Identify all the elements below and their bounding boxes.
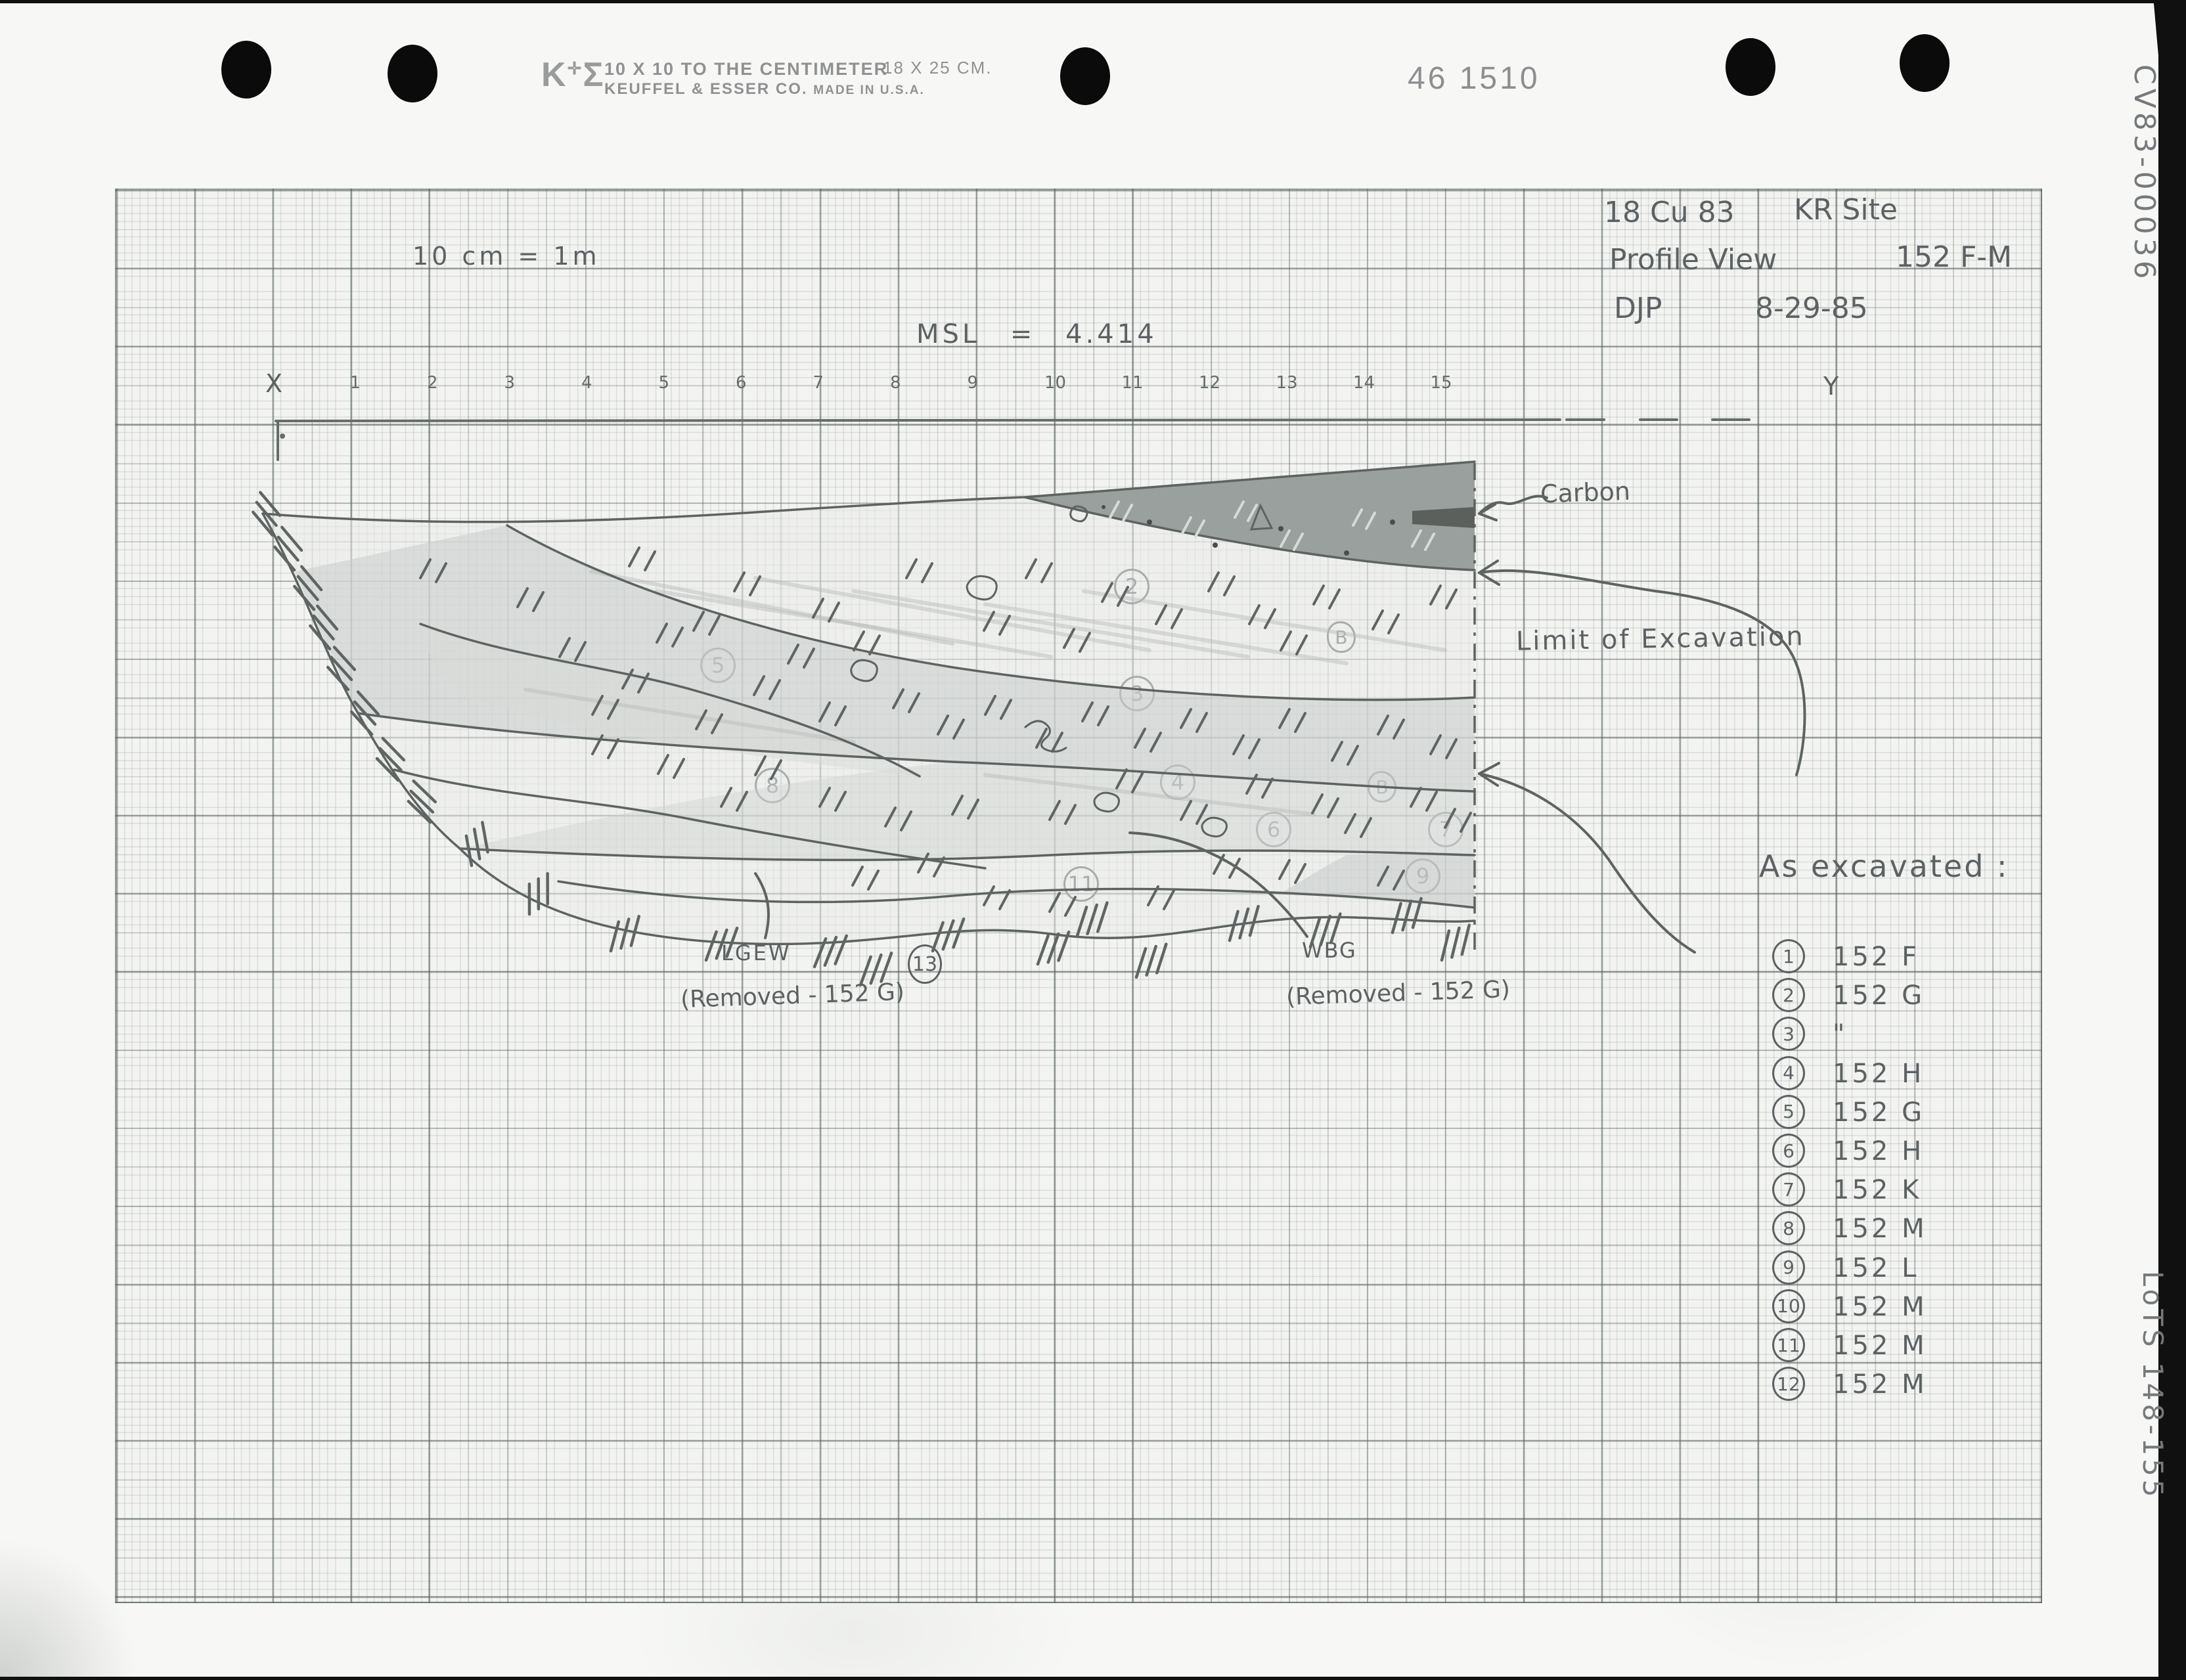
datum-line [276,420,1560,421]
carbon-arrow [1479,497,1547,514]
limit-arrow-lower [1479,774,1695,952]
scanned-graph-paper-page: K✛Σ 10 X 10 TO THE CENTIMETER KEUFFEL & … [0,0,2186,1680]
limit-arrowhead [1479,763,1499,774]
profile-drawing [0,0,2186,1680]
limit-arrow-upper [1479,571,1805,775]
datum-origin-dot [280,433,285,439]
limit-arrowhead [1479,573,1499,585]
carbon-arrowhead [1479,514,1496,520]
